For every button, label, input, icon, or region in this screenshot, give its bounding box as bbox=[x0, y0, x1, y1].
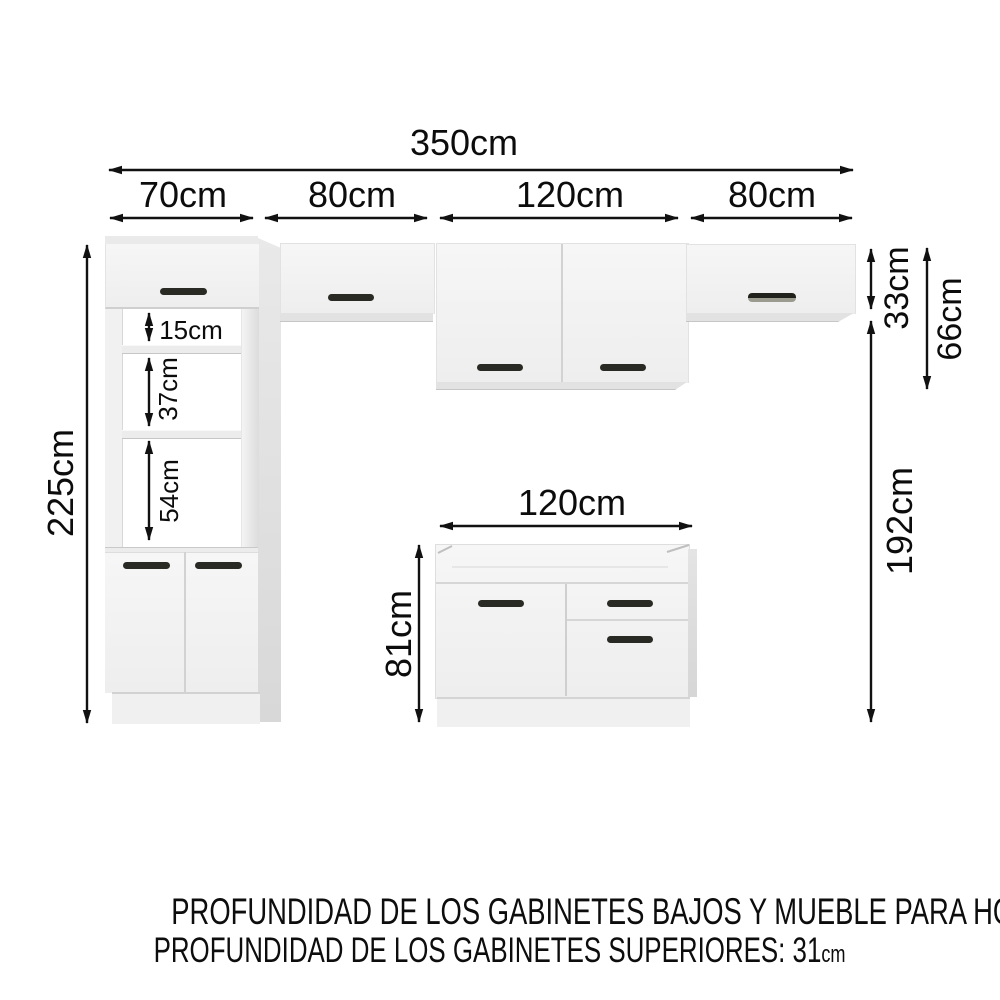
base-cabinet-door-handle bbox=[478, 600, 524, 607]
oven-tower-shelf-2 bbox=[122, 430, 241, 439]
label-section-80-right: 80cm bbox=[728, 177, 816, 213]
label-base-width: 120cm bbox=[518, 485, 626, 521]
upper-cabinet-80-left-handle bbox=[328, 294, 374, 301]
depth-note-line-2-unit: cm bbox=[822, 941, 846, 968]
depth-note-line-2-label: PROFUNDIDAD DE LOS GABINETES SUPERIORES:… bbox=[154, 931, 822, 970]
base-cabinet-side-panel bbox=[688, 549, 697, 697]
base-cabinet-drawer-handle-2 bbox=[607, 636, 653, 643]
oven-tower-door-divider bbox=[184, 552, 186, 692]
upper-cabinet-120-bottom-edge bbox=[436, 382, 687, 390]
base-cabinet-drawer-divider bbox=[567, 619, 688, 621]
oven-tower-drawer-front bbox=[105, 244, 259, 309]
label-opening-15: 15cm bbox=[159, 317, 223, 343]
label-section-80-left: 80cm bbox=[308, 177, 396, 213]
base-cabinet-back-edge-line bbox=[452, 566, 668, 568]
label-total-width: 350cm bbox=[410, 125, 518, 161]
label-section-120: 120cm bbox=[516, 177, 624, 213]
upper-cabinet-120-handle-left bbox=[477, 364, 523, 371]
base-cabinet-door-divider bbox=[565, 584, 567, 696]
label-base-height: 81cm bbox=[381, 590, 417, 678]
base-cabinet-drawer-handle-1 bbox=[607, 600, 653, 607]
depth-note-line-2-text: PROFUNDIDAD DE LOS GABINETES SUPERIORES:… bbox=[154, 931, 846, 971]
oven-tower-shelf-1 bbox=[122, 345, 241, 354]
label-section-70: 70cm bbox=[139, 177, 227, 213]
oven-tower-doors bbox=[105, 552, 258, 693]
depth-note-line-1-text: PROFUNDIDAD DE LOS GABINETES BAJOS Y MUE… bbox=[171, 891, 1000, 934]
label-height-66: 66cm bbox=[933, 277, 967, 360]
kitchen-set-dimension-diagram: 350cm 70cm 80cm 120cm 80cm 225cm 15cm 37… bbox=[0, 0, 1000, 1000]
upper-cabinet-80-right-handle bbox=[748, 293, 796, 302]
oven-tower-door-handle-right bbox=[195, 562, 242, 569]
oven-tower-right-wall bbox=[241, 309, 259, 547]
base-cabinet-rail-line bbox=[436, 582, 688, 584]
depth-note-line-1: PROFUNDIDAD DE LOS GABINETES BAJOS Y MUE… bbox=[0, 891, 1000, 934]
base-cabinet-plinth bbox=[437, 697, 690, 727]
label-opening-54: 54cm bbox=[156, 459, 182, 523]
label-height-33: 33cm bbox=[880, 246, 914, 329]
upper-cabinet-80-right-body bbox=[686, 244, 856, 314]
label-opening-37: 37cm bbox=[155, 357, 181, 421]
oven-tower-side-panel bbox=[258, 238, 281, 722]
oven-tower-drawer-handle bbox=[160, 288, 207, 295]
depth-note-line-2: PROFUNDIDAD DE LOS GABINETES SUPERIORES:… bbox=[0, 931, 1000, 971]
upper-cabinet-120-handle-right bbox=[600, 364, 646, 371]
oven-tower-door-handle-left bbox=[123, 562, 170, 569]
depth-note-line-1-label: PROFUNDIDAD DE LOS GABINETES BAJOS Y MUE… bbox=[171, 891, 1000, 932]
oven-tower-left-stile bbox=[105, 309, 123, 547]
label-span-192: 192cm bbox=[882, 467, 918, 575]
upper-cabinet-80-left-body bbox=[280, 243, 435, 314]
label-height-225: 225cm bbox=[43, 429, 79, 537]
oven-tower-plinth bbox=[112, 692, 260, 724]
upper-cabinet-80-left-bottom-edge bbox=[280, 313, 433, 322]
upper-cabinet-80-right-bottom-edge bbox=[686, 313, 854, 322]
upper-cabinet-120-door-divider bbox=[561, 244, 563, 382]
